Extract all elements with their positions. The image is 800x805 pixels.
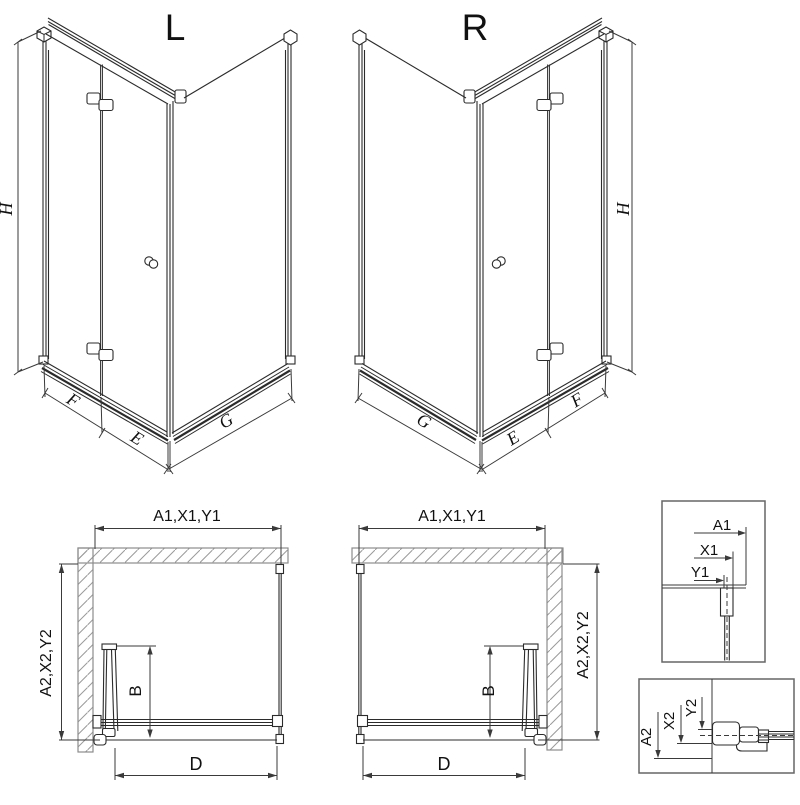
detail-depth-box: A2 X2 Y2 [638,679,794,773]
plan-right-entry-label: D [438,754,451,774]
plan-left-depth-label: A2,X2,Y2 [38,629,55,697]
plan-left-side-wall [78,548,93,752]
detail-depth-y2-label: Y2 [683,699,700,717]
detail-width-a1-label: A1 [713,517,731,534]
plan-right-depth-label: A2,X2,Y2 [575,611,592,679]
plan-right-view: A1,X1,Y1 A2,X2,Y2 B D [352,508,600,780]
plan-right-width-label: A1,X1,Y1 [418,508,486,525]
plan-left-view: A1,X1,Y1 A2,X2,Y2 B D [38,508,288,780]
iso-right-title: R [462,7,489,48]
detail-width-y1-label: Y1 [691,564,709,581]
iso-right-height-label: H [613,202,633,217]
plan-left-width-label: A1,X1,Y1 [153,508,221,525]
iso-left-g-label: G [215,409,236,433]
plan-right-top-wall [352,548,563,563]
detail-width-box: A1 X1 Y1 [662,501,765,662]
shower-enclosure-technical-diagram: L H F E G R H F E G A1,X1,Y1 A2,X2,Y2 B … [0,0,800,800]
plan-left-top-wall [78,548,288,563]
iso-right-view: R H F E G [353,7,636,474]
iso-left-view: L H F E G [0,7,297,474]
detail-width-x1-label: X1 [700,542,718,559]
plan-left-fold-label: B [126,685,145,696]
plan-left-entry-label: D [190,754,203,774]
plan-right-side-wall [547,548,562,750]
iso-left-title: L [165,7,186,48]
plan-right-fold-label: B [479,685,498,696]
iso-right-g-label: G [413,409,434,433]
detail-depth-x2-label: X2 [661,712,678,730]
iso-left-height-label: H [0,202,16,217]
detail-depth-a2-label: A2 [638,728,655,746]
